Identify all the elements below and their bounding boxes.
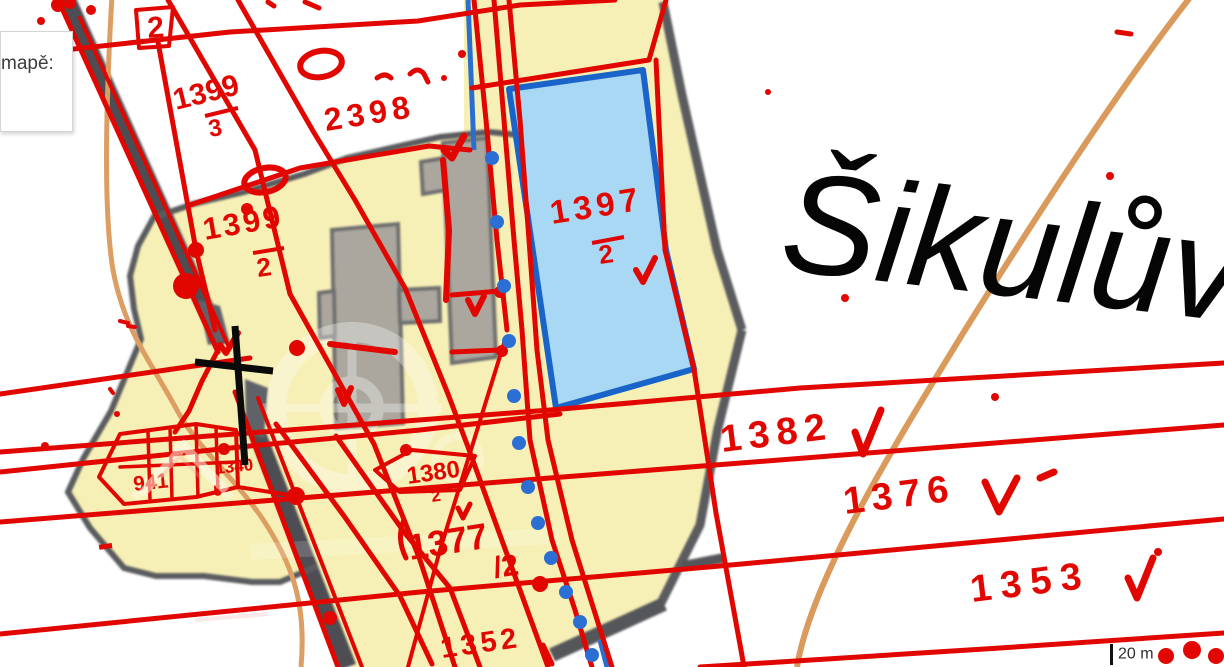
svg-text:1340: 1340: [214, 455, 254, 478]
svg-text:2: 2: [146, 11, 165, 45]
svg-text:/2: /2: [491, 548, 521, 585]
